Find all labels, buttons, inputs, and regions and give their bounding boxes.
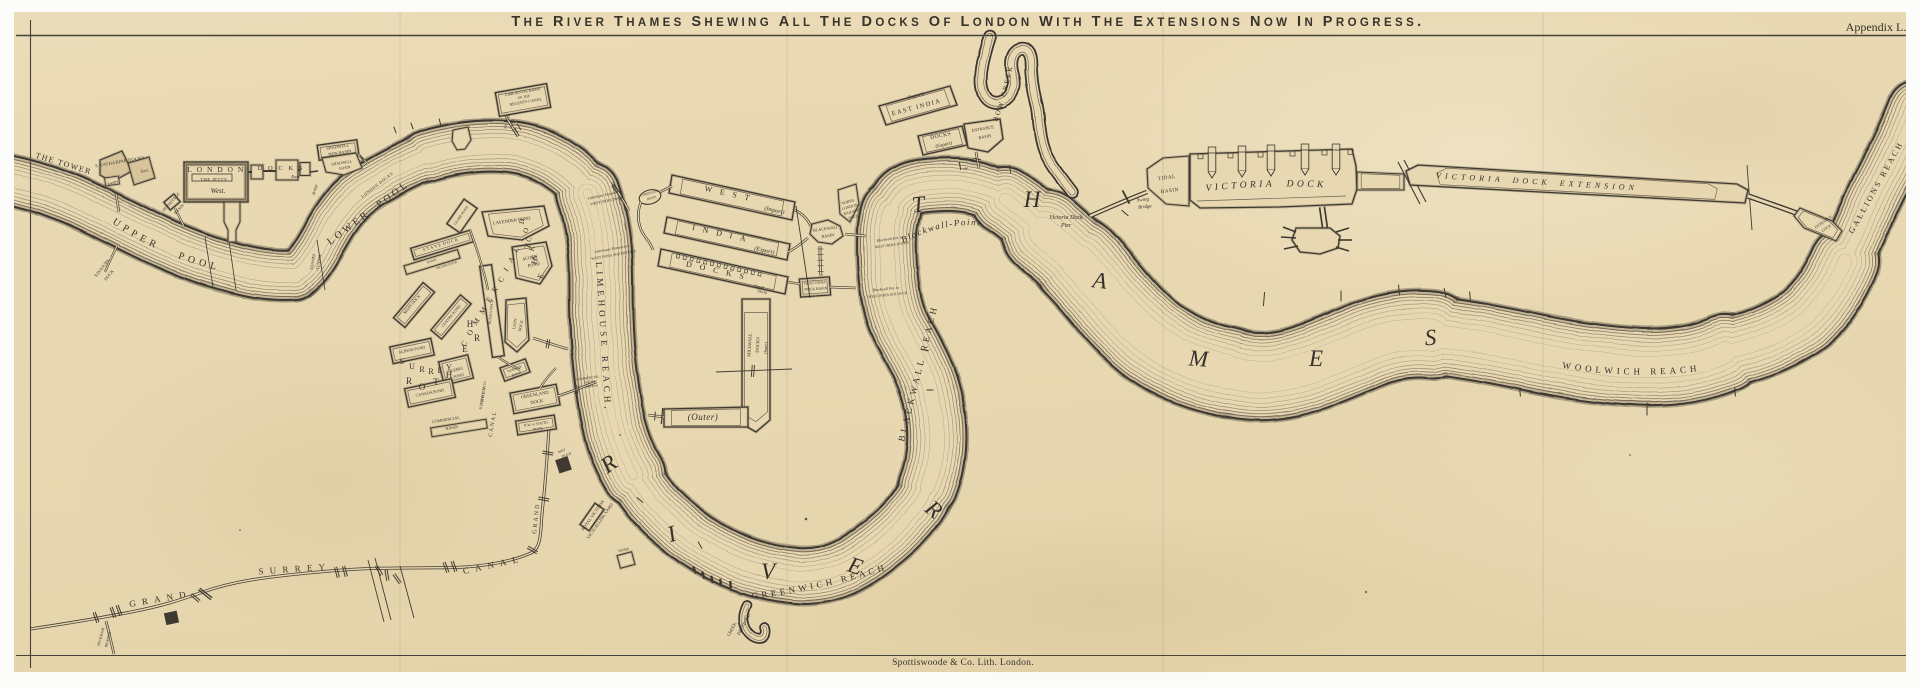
svg-text:S: S <box>1424 325 1438 351</box>
svg-text:THE RIVER THAMES SHEWING ALL T: THE RIVER THAMES SHEWING ALL THE DOCKS O… <box>511 14 1424 30</box>
svg-text:Appendix L.: Appendix L. <box>1846 20 1907 34</box>
svg-text:R: R <box>474 333 480 343</box>
svg-text:H: H <box>1023 187 1042 212</box>
svg-text:L O N D O N: L O N D O N <box>187 165 245 174</box>
svg-text:M: M <box>1187 345 1211 371</box>
svg-text:E: E <box>1308 346 1323 371</box>
svg-text:THE JETTY: THE JETTY <box>200 177 227 182</box>
svg-text:DOCKS: DOCKS <box>755 337 761 353</box>
svg-text:(Outer): (Outer) <box>688 412 719 422</box>
svg-text:D O C K S: D O C K S <box>258 165 305 172</box>
svg-text:East.: East. <box>290 174 300 179</box>
svg-text:Pier: Pier <box>1060 223 1072 229</box>
svg-text:West.: West. <box>211 187 226 195</box>
svg-text:Victoria Dock: Victoria Dock <box>1049 215 1083 221</box>
svg-text:(Inner): (Inner) <box>763 341 769 354</box>
svg-text:H: H <box>467 319 474 329</box>
